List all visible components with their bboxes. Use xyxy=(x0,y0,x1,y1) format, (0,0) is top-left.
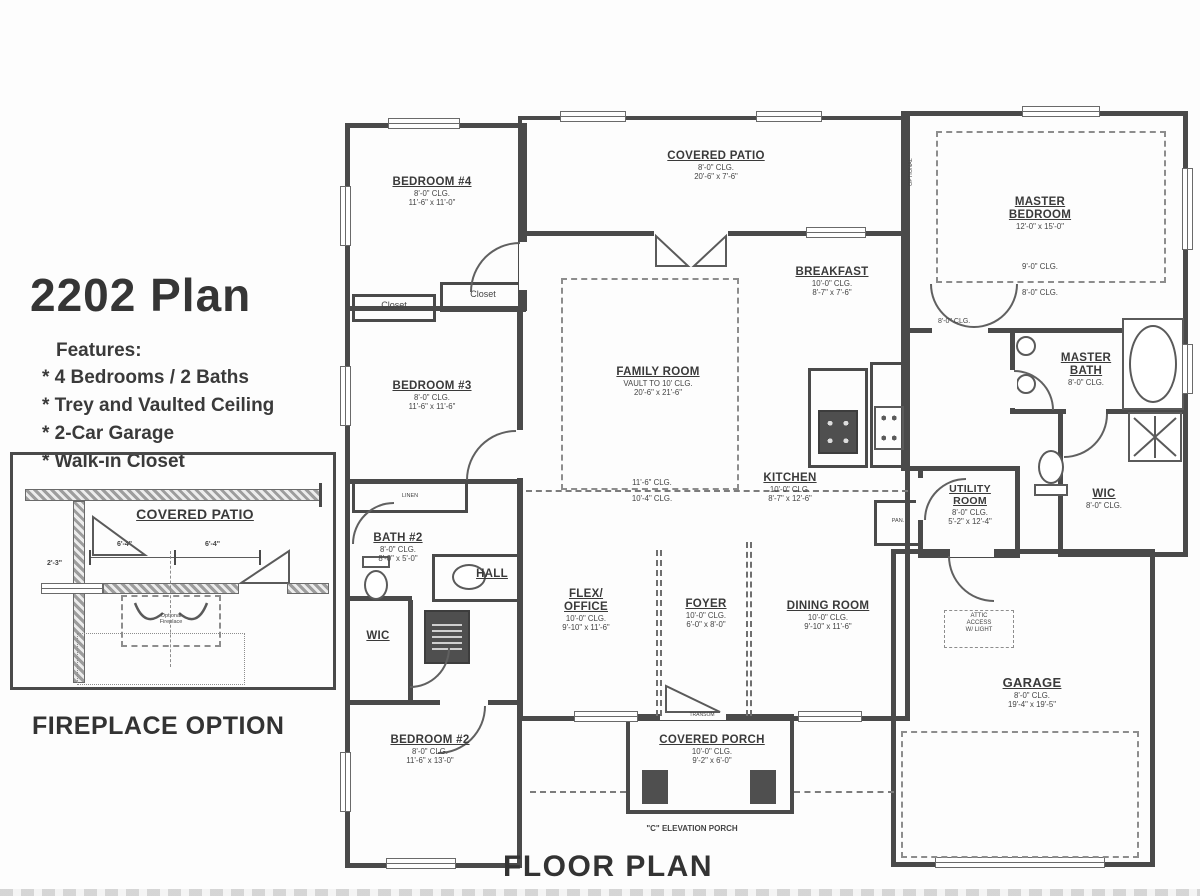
door-swing-icon xyxy=(91,513,149,557)
features-heading: Features: xyxy=(56,340,142,362)
window-icon xyxy=(340,752,351,812)
room-dims: 5'-2" x 12'-4" xyxy=(938,517,1002,526)
room-name: DINING ROOM xyxy=(787,600,870,613)
room-ceiling: 8'-0" CLG. xyxy=(1050,378,1122,387)
inset-room-label: COVERED PATIO xyxy=(136,507,254,523)
range-icon xyxy=(818,410,858,454)
porch-post xyxy=(642,770,668,804)
room-ceiling: 8'-0" CLG. xyxy=(667,163,764,172)
fireplace-label-line2: Fireplace xyxy=(160,619,183,625)
room-dims: 6'-0" x 8'-0" xyxy=(685,620,726,629)
room-ceiling: 8'-0" CLG. xyxy=(392,393,471,402)
room-name: BEDROOM #2 xyxy=(390,734,469,747)
room-ceiling: 8'-0" CLG. xyxy=(1003,691,1062,700)
optional-label: OPTIONAL xyxy=(908,142,914,186)
window-icon xyxy=(798,711,862,722)
plan-title: 2202 Plan xyxy=(30,268,251,322)
family-clg-upper: 11'-6" CLG. xyxy=(632,478,672,487)
room-ceiling: VAULT TO 10' CLG. xyxy=(616,379,699,388)
room-name: WIC xyxy=(366,630,389,643)
inset-dim-corner: 2'-3" xyxy=(47,560,62,567)
room-label-bedroom2: BEDROOM #2 8'-0" CLG. 11'-6" x 13'-0" xyxy=(390,734,469,766)
door-opening xyxy=(519,242,527,290)
room-name: GARAGE xyxy=(1003,676,1062,691)
room-name: BEDROOM #4 xyxy=(392,176,471,189)
tray-ceiling-label: 9'-0" CLG. xyxy=(1022,262,1058,271)
room-ceiling: 10'-0" CLG. xyxy=(554,614,618,623)
inset-dim-right: 6'-4" xyxy=(205,541,220,548)
room-dims: 11'-6" x 11'-6" xyxy=(392,402,471,411)
room-dims: 19'-4" x 19'-5" xyxy=(1003,700,1062,709)
room-label-hall-wic: WIC xyxy=(366,630,389,643)
cropped-text-strip xyxy=(0,889,1200,896)
cooktop-icon xyxy=(874,406,904,450)
porch-elevation-line xyxy=(794,791,894,793)
inset-caption: FIREPLACE OPTION xyxy=(32,712,284,741)
sheet-title: FLOOR PLAN xyxy=(503,850,713,884)
feature-item: * 2-Car Garage xyxy=(42,420,174,449)
attic-line: ACCESS xyxy=(966,620,993,627)
foyer-column-line xyxy=(656,550,662,716)
room-label-dining: DINING ROOM 10'-0" CLG. 9'-10" x 11'-6" xyxy=(787,600,870,632)
pantry-label: PAN. xyxy=(892,518,904,524)
room-label-covered-porch: COVERED PORCH 10'-0" CLG. 9'-2" x 6'-0" xyxy=(659,734,765,766)
patio-door-swing-icon xyxy=(654,232,728,268)
clg-lower: 10'-4" CLG. xyxy=(632,494,672,503)
ceiling-break-line xyxy=(526,490,908,492)
window-icon xyxy=(1022,106,1100,117)
porch-elevation-line xyxy=(530,791,626,793)
toilet-bowl-icon xyxy=(364,570,388,600)
room-name: BEDROOM #3 xyxy=(392,380,471,393)
room-name: BREAKFAST xyxy=(796,266,869,279)
window-icon xyxy=(1182,168,1193,250)
room-label-bath2: BATH #2 8'-0" CLG. 8'-0" x 5'-0" xyxy=(373,532,422,564)
base-ceiling-label: 8'-0" CLG. xyxy=(1022,288,1058,297)
inset-wall-cap xyxy=(319,483,322,507)
front-door-swing-icon xyxy=(664,682,724,714)
room-label-hall: HALL xyxy=(476,568,508,581)
door-opening xyxy=(516,430,524,478)
attic-access-label: ATTIC ACCESS W/ LIGHT xyxy=(966,613,993,635)
feature-item: * Trey and Vaulted Ceiling xyxy=(42,392,274,421)
room-dims: 9'-10" x 11'-6" xyxy=(787,622,870,631)
room-ceiling: 10'-0" CLG. xyxy=(787,613,870,622)
base-clg: 8'-0" CLG. xyxy=(1022,288,1058,297)
c-elevation-label: "C" ELEVATION PORCH xyxy=(646,824,737,833)
room-name: MASTER BATH xyxy=(1050,352,1122,378)
room-ceiling: 10'-0" CLG. xyxy=(659,747,765,756)
room-ceiling: 10'-0" CLG. xyxy=(796,279,869,288)
tray-clg: 9'-0" CLG. xyxy=(1022,262,1058,271)
room-ceiling: 8'-0" CLG. xyxy=(390,747,469,756)
shower-x-icon xyxy=(1132,416,1178,458)
window-icon xyxy=(386,858,456,869)
room-name: HALL xyxy=(476,568,508,581)
room-label-kitchen: KITCHEN 10'-0" CLG. 8'-7" x 12'-6" xyxy=(763,472,816,504)
room-dims: 11'-6" x 11'-0" xyxy=(392,198,471,207)
tub-icon xyxy=(1129,325,1177,403)
room-name: FLEX/ OFFICE xyxy=(554,588,618,614)
room-label-master-bedroom: MASTER BEDROOM 12'-0" x 15'-0" xyxy=(985,196,1095,231)
porch-post xyxy=(750,770,776,804)
toilet-bowl-icon xyxy=(1038,450,1064,484)
room-name: UTILITY ROOM xyxy=(938,484,1002,508)
room-name: KITCHEN xyxy=(763,472,816,485)
room-ceiling: 8'-0" CLG. xyxy=(1086,501,1122,510)
room-dims: 20'-6" x 7'-6" xyxy=(667,172,764,181)
attic-line: W/ LIGHT xyxy=(966,627,993,634)
toilet-tank-icon xyxy=(1034,484,1068,496)
window-icon xyxy=(1182,344,1193,394)
room-dims: 20'-6" x 21'-6" xyxy=(616,388,699,397)
foyer-column-line xyxy=(746,542,752,716)
window-icon xyxy=(756,111,822,122)
room-label-family-room: FAMILY ROOM VAULT TO 10' CLG. 20'-6" x 2… xyxy=(616,366,699,398)
window-icon xyxy=(560,111,626,122)
room-ceiling: 8'-0" CLG. xyxy=(392,189,471,198)
room-ceiling: 8'-0" CLG. xyxy=(373,545,422,554)
sink-icon xyxy=(1016,336,1036,356)
room-label-bedroom3: BEDROOM #3 8'-0" CLG. 11'-6" x 11'-6" xyxy=(392,380,471,412)
closet-label: Closet xyxy=(381,300,407,310)
inset-rear-wall xyxy=(287,583,329,594)
room-ceiling: 10'-0" CLG. xyxy=(685,611,726,620)
room-label-master-bath: MASTER BATH 8'-0" CLG. xyxy=(1050,352,1122,387)
room-dims: 12'-0" x 15'-0" xyxy=(985,222,1095,231)
room-ceiling: 8'-0" CLG. xyxy=(938,508,1002,517)
floor-plan-sheet: { "colors": {"ink": "#4a4a4a", "paper": … xyxy=(0,0,1200,896)
master-hall-clg-label: 8'-0" CLG. xyxy=(938,318,970,325)
room-dims: 11'-6" x 13'-0" xyxy=(390,756,469,765)
room-dims: 9'-2" x 6'-0" xyxy=(659,756,765,765)
linen-label: LINEN xyxy=(402,493,418,499)
room-name: MASTER BEDROOM xyxy=(985,196,1095,222)
dim-tick xyxy=(174,550,176,565)
room-name: COVERED PORCH xyxy=(659,734,765,747)
room-dims: 8'-7" x 12'-6" xyxy=(763,494,816,503)
bedroom2-walls xyxy=(345,700,522,868)
garage-door-outline xyxy=(901,731,1139,858)
room-name: FOYER xyxy=(685,598,726,611)
room-label-garage: GARAGE 8'-0" CLG. 19'-4" x 19'-5" xyxy=(1003,676,1062,709)
window-icon xyxy=(41,583,103,594)
family-clg-lower: 10'-4" CLG. xyxy=(632,494,672,503)
room-dims: 9'-10" x 11'-6" xyxy=(554,623,618,632)
door-opening xyxy=(932,327,988,335)
room-name: FAMILY ROOM xyxy=(616,366,699,379)
inset-rear-wall xyxy=(103,583,239,594)
room-dims: 8'-7" x 7'-6" xyxy=(796,288,869,297)
centerline xyxy=(170,551,171,667)
attic-line: ATTIC xyxy=(966,613,993,620)
room-name: BATH #2 xyxy=(373,532,422,545)
window-icon xyxy=(806,227,866,238)
garage-door-opening xyxy=(935,857,1105,868)
door-swing-icon xyxy=(239,547,291,585)
hearth-outline xyxy=(77,633,245,685)
room-name: WIC xyxy=(1086,488,1122,501)
room-ceiling: 10'-0" CLG. xyxy=(763,485,816,494)
room-label-breakfast: BREAKFAST 10'-0" CLG. 8'-7" x 7'-6" xyxy=(796,266,869,298)
transom-label: TRANSOM xyxy=(690,712,715,718)
room-label-foyer: FOYER 10'-0" CLG. 6'-0" x 8'-0" xyxy=(685,598,726,630)
fireplace-label: Optional Fireplace xyxy=(160,613,183,625)
room-dims: 8'-0" x 5'-0" xyxy=(373,554,422,563)
window-icon xyxy=(340,366,351,426)
fireplace-option-inset: COVERED PATIO 6'-4" 6'-4" 2'-3" Optional… xyxy=(10,452,336,690)
window-icon xyxy=(340,186,351,246)
room-label-covered-patio: COVERED PATIO 8'-0" CLG. 20'-6" x 7'-6" xyxy=(667,150,764,182)
room-name: COVERED PATIO xyxy=(667,150,764,163)
feature-item: * 4 Bedrooms / 2 Baths xyxy=(42,364,249,393)
room-label-master-wic: WIC 8'-0" CLG. xyxy=(1086,488,1122,510)
inset-room-name: COVERED PATIO xyxy=(136,507,254,523)
clg-upper: 11'-6" CLG. xyxy=(632,478,672,487)
room-label-utility: UTILITY ROOM 8'-0" CLG. 5'-2" x 12'-4" xyxy=(938,484,1002,526)
inset-patio-wall xyxy=(25,489,321,501)
room-label-flex-office: FLEX/ OFFICE 10'-0" CLG. 9'-10" x 11'-6" xyxy=(554,588,618,632)
window-icon xyxy=(574,711,638,722)
window-icon xyxy=(388,118,460,129)
room-label-bedroom4: BEDROOM #4 8'-0" CLG. 11'-6" x 11'-0" xyxy=(392,176,471,208)
